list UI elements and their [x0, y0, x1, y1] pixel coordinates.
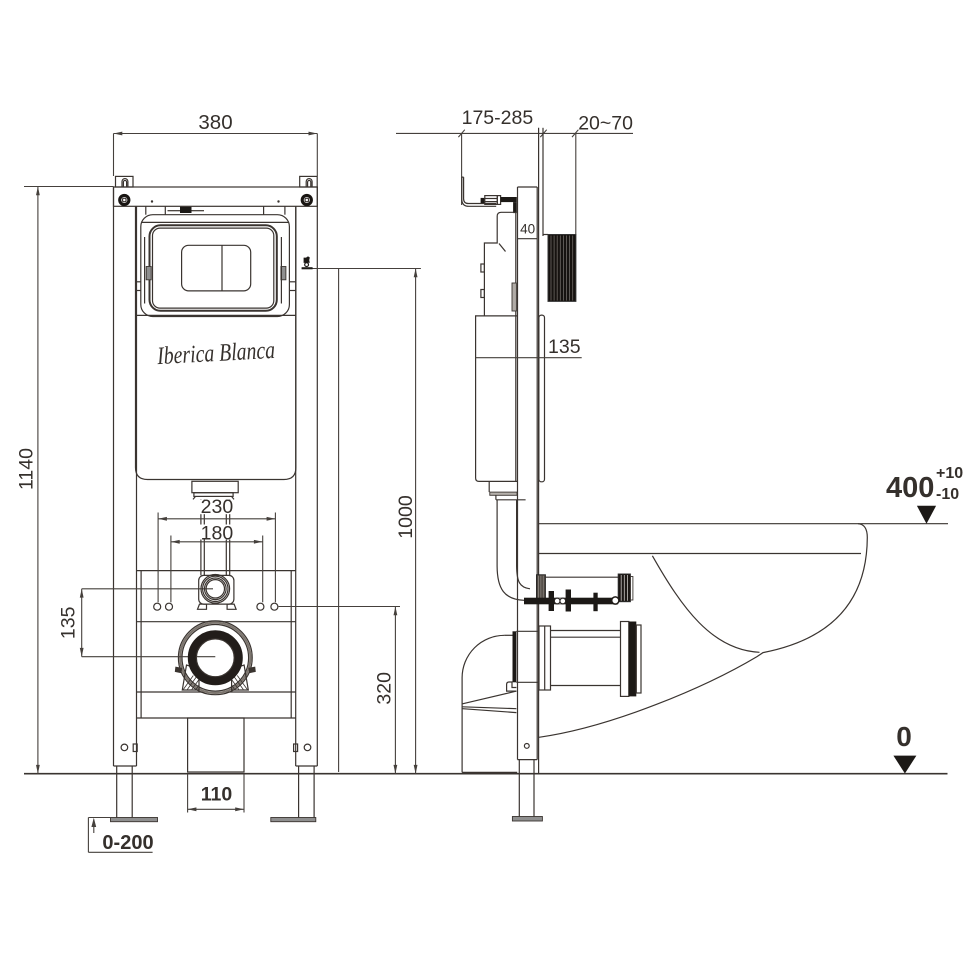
- svg-text:180: 180: [201, 522, 234, 544]
- svg-text:110: 110: [201, 784, 233, 806]
- svg-text:135: 135: [548, 336, 581, 358]
- svg-text:1000: 1000: [395, 495, 417, 539]
- svg-text:20~70: 20~70: [578, 113, 633, 135]
- svg-text:+10: +10: [936, 465, 963, 482]
- svg-text:400: 400: [886, 472, 934, 504]
- svg-text:0-200: 0-200: [102, 832, 153, 854]
- svg-text:-10: -10: [936, 486, 959, 503]
- svg-text:380: 380: [198, 111, 232, 134]
- svg-text:175-285: 175-285: [462, 107, 534, 129]
- svg-text:230: 230: [201, 496, 234, 518]
- svg-text:40: 40: [520, 222, 535, 237]
- svg-text:135: 135: [58, 606, 80, 639]
- svg-text:320: 320: [374, 672, 396, 705]
- svg-text:1140: 1140: [16, 448, 38, 490]
- svg-text:0: 0: [896, 721, 912, 752]
